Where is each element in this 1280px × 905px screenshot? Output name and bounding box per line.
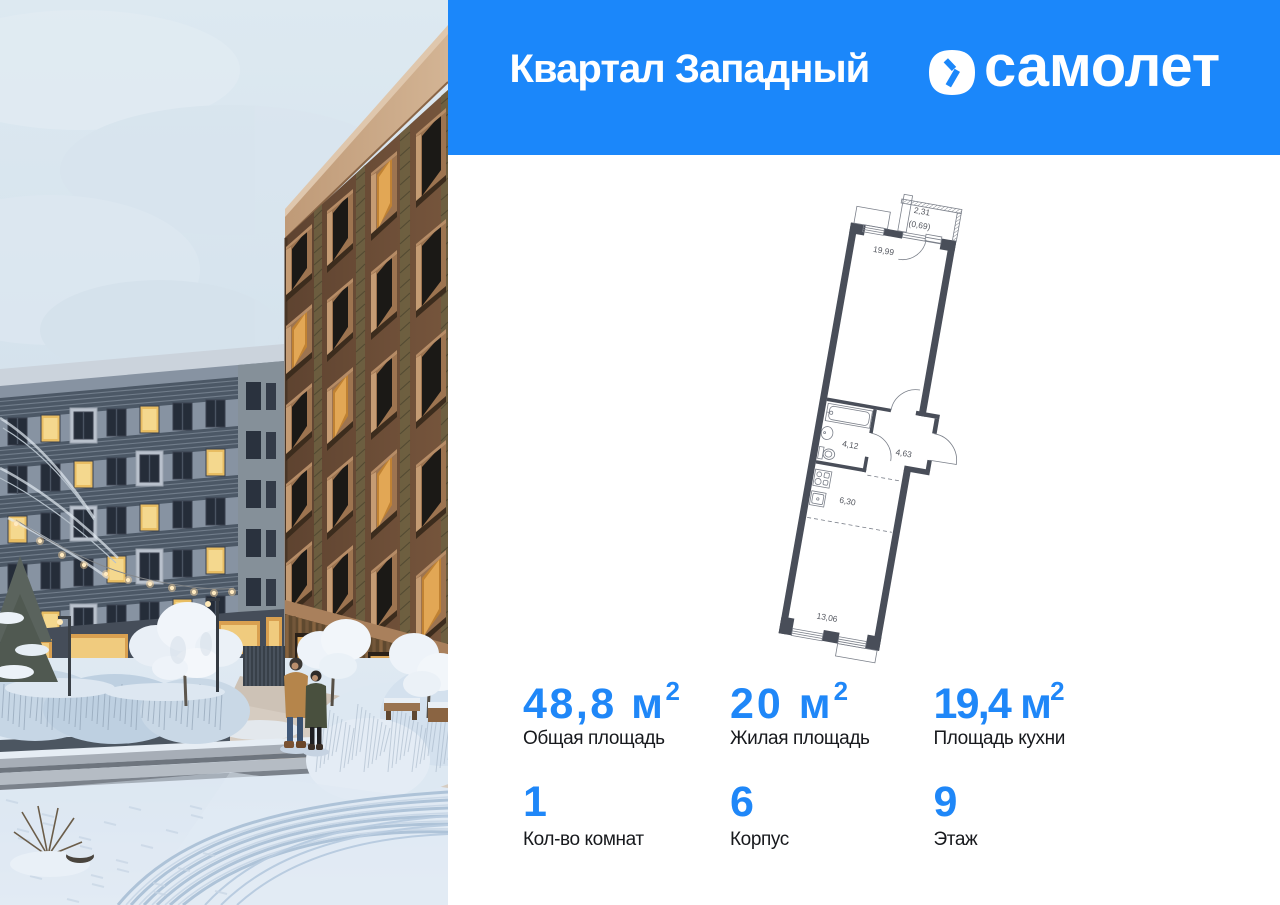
svg-text:2,31: 2,31 (913, 205, 931, 218)
svg-text:6,30: 6,30 (839, 495, 857, 508)
svg-text:(0,69): (0,69) (908, 218, 931, 232)
svg-text:13,06: 13,06 (816, 611, 839, 625)
svg-text:19,99: 19,99 (872, 244, 895, 258)
svg-text:4,12: 4,12 (841, 438, 859, 451)
svg-text:4,63: 4,63 (895, 447, 913, 460)
